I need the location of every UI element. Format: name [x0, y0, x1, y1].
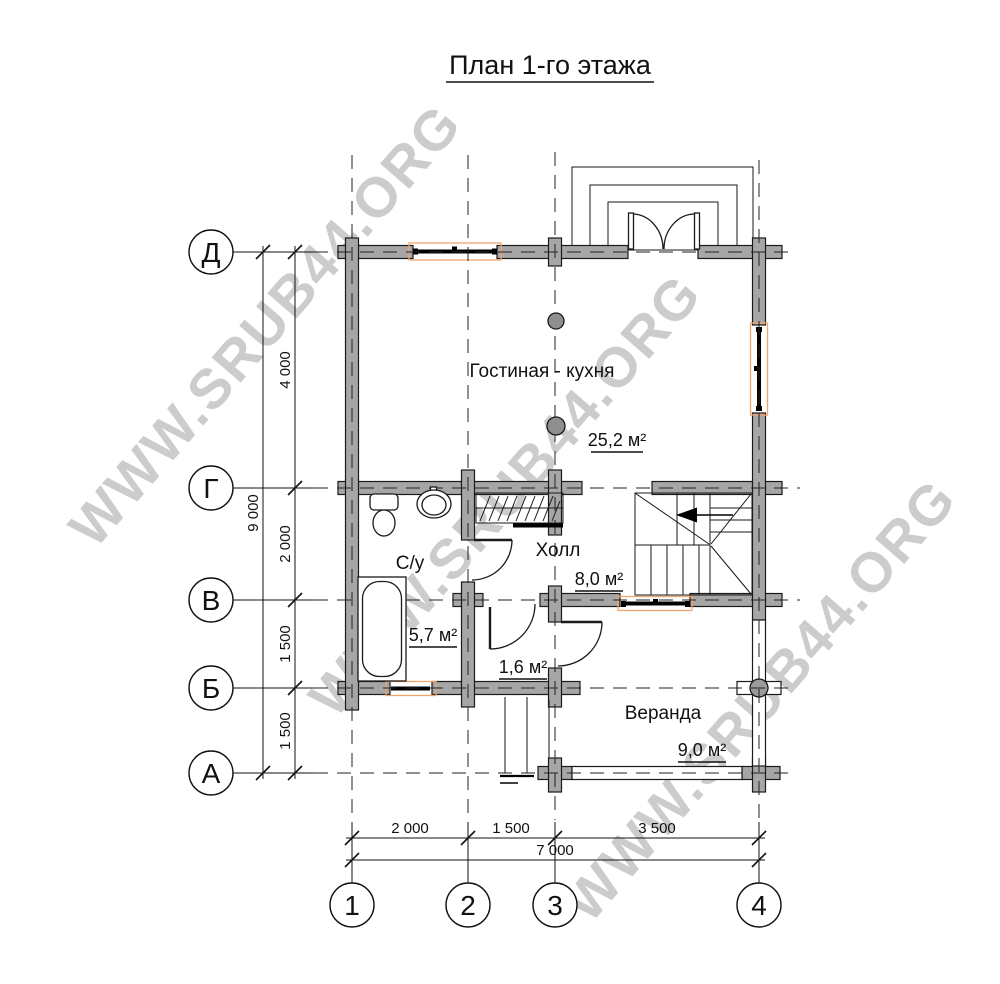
door-leaf	[629, 213, 634, 249]
dim-label: 1 500	[492, 820, 530, 837]
room-name-bathroom: С/у	[396, 553, 425, 574]
veranda-walls	[572, 620, 781, 780]
dim-label: 1 500	[277, 625, 294, 663]
support-column	[547, 417, 565, 435]
canopy-step-middle	[590, 185, 737, 250]
room-name-living-kitchen: Гостиная - кухня	[470, 361, 615, 382]
grid-bubbles-rows: Д Г В Б А	[189, 230, 233, 795]
floor-plan-drawing: 9 000 4 000 2 000 1 500 1 500 2 000 1 50…	[0, 0, 1000, 984]
floor-plan-page: WWW.SRUB44.ORG WWW.SRUB44.ORG WWW.SRUB44…	[0, 0, 1000, 984]
grid-bubble-label: 2	[460, 890, 476, 921]
room-area-living-kitchen: 25,2 м²	[588, 430, 646, 450]
sink-basin-inner	[422, 495, 446, 515]
grid-bubble-label: 4	[751, 890, 767, 921]
hall-tambour-door	[490, 604, 535, 649]
window-hall	[618, 597, 692, 611]
door-swing-arc	[490, 604, 535, 649]
grid-bubbles-cols: 1 2 3 4	[330, 883, 781, 927]
grid-bubble-label: Б	[202, 673, 220, 704]
room-name-veranda: Веранда	[625, 703, 702, 724]
page-title: План 1-го этажа	[449, 50, 652, 80]
toilet	[370, 494, 398, 536]
room-area-hall: 8,0 м²	[575, 569, 623, 589]
stair-direction-arrow	[676, 508, 697, 523]
stair-main	[635, 493, 752, 595]
canopy-step-outer	[572, 167, 753, 250]
toilet-bowl	[373, 510, 395, 536]
grid-bubble-label: В	[202, 585, 221, 616]
drawing-title: План 1-го этажа	[446, 50, 654, 82]
grid-bubble-label: 1	[344, 890, 360, 921]
dim-label: 2 000	[277, 525, 294, 563]
window-jamb	[492, 249, 497, 255]
bottom-dimensions: 2 000 1 500 3 500 7 000	[345, 820, 766, 883]
dim-label-left-total: 9 000	[245, 494, 262, 532]
dim-label: 3 500	[638, 820, 676, 837]
grid-bubble-label: А	[202, 758, 221, 789]
grid-bubble-label: Г	[203, 473, 218, 504]
bathroom-door	[472, 540, 512, 580]
door-swing-arc	[472, 540, 512, 580]
left-dimensions: 9 000 4 000 2 000 1 500 1 500	[233, 245, 314, 780]
entrance-door	[629, 213, 700, 249]
bathtub-inner	[363, 582, 402, 677]
support-column	[548, 313, 564, 329]
door-swing-arc	[558, 622, 602, 666]
dim-label: 2 000	[391, 820, 429, 837]
window-jamb	[756, 406, 762, 411]
bathtub	[358, 577, 406, 681]
room-area-veranda: 9,0 м²	[678, 740, 726, 760]
wall-segment	[497, 246, 628, 259]
grid-bubble-label: 3	[547, 890, 563, 921]
door-swing-arc	[664, 214, 695, 249]
room-name-hall: Холл	[536, 540, 581, 561]
toilet-tank	[370, 494, 398, 510]
veranda-door	[558, 622, 602, 666]
veranda-wall	[753, 695, 766, 766]
window-jamb	[685, 601, 690, 607]
room-area-bathroom: 5,7 м²	[409, 625, 457, 645]
entrance-canopy	[572, 167, 753, 250]
dim-label-bottom-total: 7 000	[536, 842, 574, 859]
door-leaf	[695, 213, 700, 249]
window-jamb	[653, 599, 658, 605]
room-area-tambour: 1,6 м²	[499, 657, 547, 677]
window-jamb	[621, 601, 626, 607]
dim-label: 1 500	[277, 712, 294, 750]
grid-bubble-label: Д	[202, 237, 221, 268]
dim-label: 4 000	[277, 351, 294, 389]
door-swing-arc	[633, 214, 663, 249]
